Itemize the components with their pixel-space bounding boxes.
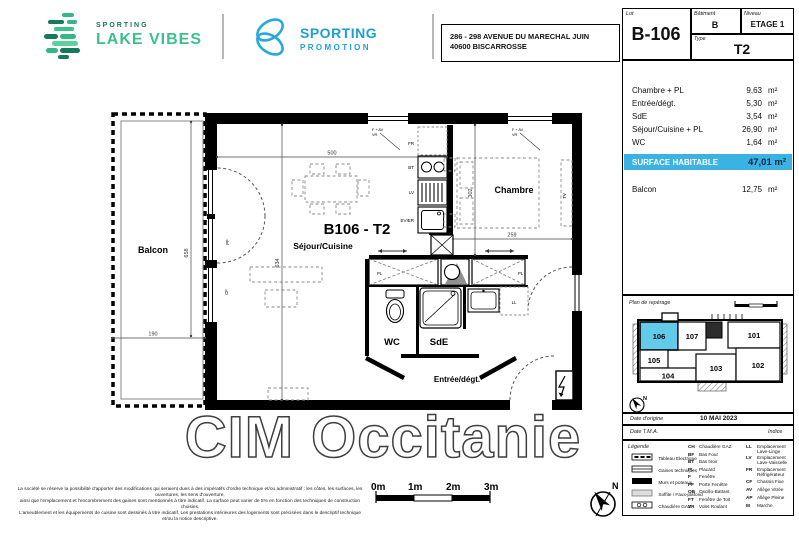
label-evier: EVIER [400,218,414,223]
label-ll: LL [512,300,517,305]
abbr-label: Marche [757,503,773,508]
room-label-wc: WC [384,337,400,348]
legend-symbol-row: Tableau Electrique [631,453,697,461]
lot-box-divider-h [690,33,794,35]
abbr-code: FR [746,467,757,477]
disclaimer-line-3: L'ameublement et les équipements de cuis… [14,511,366,523]
legend-symbol-row: Murs et poteaux [631,477,692,485]
area-value: 9,63 [728,86,762,95]
abbr-label: Chassis Fixe [757,479,784,484]
address-line-1: 286 - 298 AVENUE DU MARECHAL JUIN [450,32,619,42]
label-bt: BT [408,165,414,170]
batiment-label: Bâtiment [694,11,715,17]
label-fr: FR [408,141,415,146]
niveau-value: ETAGE 1 [741,20,794,29]
label-pl-left: PL [377,271,383,276]
legend-symbol-row: Chaudière GAZ [631,501,691,509]
label-cf: CF [224,289,229,295]
abbr-code: BT [688,459,699,464]
disclaimer: La société se réserve la possibilité d'a… [14,487,366,523]
balcon-value: 12,75 [728,185,762,194]
abbr-label: Fenêtre [699,474,715,479]
room-label-chambre: Chambre [494,185,533,195]
abbr-label: Chaudière GAZ [699,444,732,449]
label-lv: LV [409,190,414,195]
area-value: 5,30 [728,99,762,108]
murs-poteaux-icon [631,477,653,485]
header-divider-2 [432,14,434,59]
miniplan-label-106: 106 [653,332,666,341]
area-unit: m² [768,99,777,108]
reperage-title: Plan de repérage [629,300,670,306]
room-label-sejour: Séjour/Cuisine [293,241,353,251]
area-name: SdE [632,112,647,121]
electrical-panel [556,371,573,400]
dim-634: 634 [275,258,281,267]
legend-symbol-label: Murs et poteaux [658,480,692,485]
plan-unit-title: B106 - T2 [324,221,391,238]
lot-value: B-106 [622,24,690,45]
room-label-sde: SdE [430,337,448,348]
surface-habitable-label: SURFACE HABITABLE [632,158,718,167]
disclaimer-line-1: La société se réserve la possibilité d'a… [14,487,366,499]
area-value: 26,90 [728,125,762,134]
abbr-label2: Lave-Vaisselle [757,460,787,465]
balcon-name: Balcon [632,185,656,194]
scale-3m: 3m [484,482,499,493]
date-origine-value: 10 MAI 2023 [700,415,737,422]
miniplan-label-104: 104 [662,372,675,381]
bathroom-fixtures [386,287,528,328]
area-unit: m² [768,125,777,134]
abbr-code: AP [746,495,757,500]
address-line-2: 40600 BISCARROSSE [450,42,619,52]
area-value: 1,64 [728,138,762,147]
dim-500: 500 [327,151,336,157]
area-unit: m² [768,138,777,147]
abbr-code: PF [688,482,699,487]
scale-0m: 0m [371,482,386,493]
window1-label: F + AV [372,128,384,132]
area-name: Séjour/Cuisine + PL [632,125,703,134]
area-name: Entrée/dégt. [632,99,676,108]
abbr-code: FT [688,497,699,502]
indice-label: Indice [768,429,782,435]
reperage-compass-icon: N [627,393,651,413]
area-row: WC 1,64 m² [632,138,786,150]
surface-habitable-row: SURFACE HABITABLE 47,01 m² [624,154,792,170]
area-name: WC [632,138,645,147]
reperage-miniplan: 106 107 101 105 104 103 102 [632,310,788,396]
niveau-label: Niveau [744,11,761,17]
reperage-scalebar [733,301,781,309]
room-label-entree: Entrée/dégt. [434,375,480,384]
chaudiere-icon [631,501,653,509]
balcon-row: Balcon 12,75 m² [632,185,786,197]
brand2-line1: SPORTING [300,25,377,41]
abbr-label: Allège Vitrée [757,487,784,492]
area-row: Séjour/Cuisine + PL 26,90 m² [632,125,786,137]
date-origine-label: Date d'origine [630,416,663,422]
abbr-label: Bas tiroir [699,459,718,464]
miniplan-label-107: 107 [686,332,699,341]
lake-vibes-logo-icon [44,13,90,61]
abbr-label: Bas Four [699,452,718,457]
abbr-label: Allège Pleine [757,495,784,500]
label-pf: PF [225,239,230,245]
abbr-code: CH [688,444,699,449]
miniplan-label-105: 105 [648,356,661,365]
area-row: Chambre + PL 9,63 m² [632,86,786,98]
lot-label: Lot [626,11,634,17]
abbr-code: OB [688,489,699,494]
address-box: 286 - 298 AVENUE DU MARECHAL JUIN 40600 … [441,24,620,62]
dim-658: 658 [184,248,190,257]
floor-plan-drawing: B106 - T2 Séjour/Cuisine Balcon Chambre … [95,100,615,420]
abbr-code: PL [688,467,699,472]
header-divider-1 [222,14,224,59]
abbr-code: LL [746,444,757,454]
area-row: SdE 3,54 m² [632,112,786,124]
window1-sub: VR [372,133,378,137]
svg-text:N: N [612,481,619,491]
room-label-balcon: Balcon [138,245,168,255]
label-pl-right: PL [518,271,524,276]
date-tma-label: Date T.M.A. [630,429,658,435]
window2-sub: VR [512,133,518,137]
abbr-code: AV [746,487,757,492]
abbr-code: LV [746,455,757,465]
miniplan-label-103: 103 [710,364,723,373]
legend-symbol-label: Chaudière GAZ [658,504,691,509]
dim-302: 302 [468,188,474,197]
brand1-line1: SPORTING [96,22,202,29]
disclaimer-line-2: ainsi que l'emplacement et l'encombremen… [14,499,366,511]
type-value: T2 [690,41,794,57]
abbr-code: CF [746,479,757,484]
floor-plan-sheet: SPORTING LAKE VIBES SPORTING PROMOTION 2… [0,0,799,533]
miniplan-label-101: 101 [748,331,761,340]
tableau-electrique-icon [631,453,653,461]
abbr-code: F [688,474,699,479]
abbr-label: Oscillo-Battant [699,489,729,494]
butterfly-icon [250,16,294,58]
abbr-code: VR [688,504,699,509]
brand2-line2: PROMOTION [300,43,377,52]
area-name: Chambre + PL [632,86,684,95]
promotion-logo-text: SPORTING PROMOTION [300,25,377,52]
abbr-label2: Réfrigérateur [757,472,784,477]
abbr-label2: Lave-Linge [757,449,780,454]
legend-title: Légende [628,444,649,450]
north-compass-icon: N [588,478,626,522]
batiment-value: B [690,20,740,30]
brand1-line2: LAKE VIBES [96,31,202,49]
abbr-label: Fenêtre de Toit [699,497,730,502]
svg-text:N: N [643,396,647,402]
scale-2m: 2m [446,482,461,493]
surface-habitable-value: 47,01 m² [748,157,786,168]
lake-vibes-logo-text: SPORTING LAKE VIBES [96,22,202,49]
dim-259: 259 [507,233,516,239]
area-value: 3,54 [728,112,762,121]
dim-190: 190 [148,332,157,338]
label-tv: TV [562,193,567,199]
abbr-label: Porte Fenêtre [699,482,728,487]
area-unit: m² [768,112,777,121]
area-row: Entrée/dégt. 5,30 m² [632,99,786,111]
window2-label: F + AV [512,128,524,132]
scale-bar: 0m 1m 2m 3m [370,479,500,507]
abbr-code: M [746,503,757,508]
abbr-code: BF [688,452,699,457]
abbr-label: Placard [699,467,715,472]
balcon-unit: m² [768,185,777,194]
miniplan-label-102: 102 [752,361,765,370]
area-unit: m² [768,86,777,95]
soffite-icon [631,489,653,497]
scale-1m: 1m [408,482,423,493]
gaines-techniques-icon [631,465,653,473]
abbr-label: Volet Roulant [699,504,727,509]
